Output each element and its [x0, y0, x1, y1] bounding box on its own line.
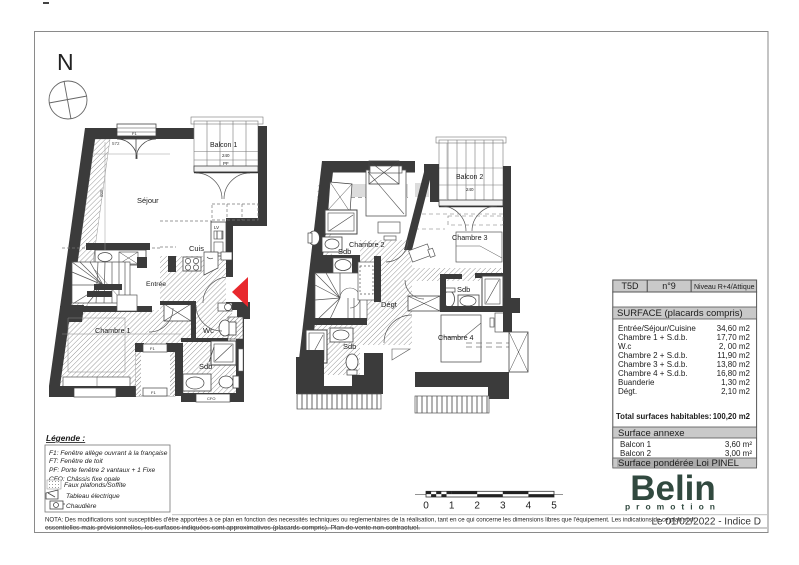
svg-text:NOTA: Des modifications sont s: NOTA: Des modifications sont susceptible… [45, 517, 695, 524]
svg-text:2,10 m2: 2,10 m2 [721, 387, 750, 396]
svg-text:5: 5 [551, 501, 557, 512]
svg-text:572: 572 [112, 141, 120, 146]
svg-text:LV: LV [214, 225, 219, 230]
svg-text:Dégt: Dégt [381, 300, 398, 309]
svg-text:0: 0 [423, 501, 429, 512]
svg-text:Dégt.: Dégt. [618, 387, 637, 396]
svg-text:Tableau électrique: Tableau électrique [66, 493, 120, 500]
svg-text:11,90 m2: 11,90 m2 [717, 351, 750, 360]
svg-text:Légende :: Légende : [46, 433, 85, 443]
svg-text:PF: PF [223, 161, 229, 166]
svg-text:3,00 m²: 3,00 m² [725, 449, 752, 458]
svg-text:Séjour: Séjour [137, 196, 159, 205]
svg-text:34,60 m2: 34,60 m2 [717, 324, 751, 333]
svg-text:Balcon 2: Balcon 2 [620, 449, 652, 458]
svg-text:Balcon 1: Balcon 1 [620, 440, 652, 449]
svg-text:FT: Fenêtre de toit: FT: Fenêtre de toit [49, 458, 104, 465]
svg-text:n°9: n°9 [662, 281, 676, 291]
svg-text:Chambre 3 + S.d.b.: Chambre 3 + S.d.b. [618, 360, 688, 369]
svg-text:Niveau R+4/Attique: Niveau R+4/Attique [694, 284, 755, 291]
svg-text:Sdb: Sdb [338, 247, 351, 256]
svg-text:SURFACE (placards compris): SURFACE (placards compris) [617, 308, 743, 319]
svg-text:Sdb: Sdb [457, 285, 470, 294]
svg-text:13,80 m2: 13,80 m2 [717, 360, 751, 369]
svg-text:Entrée: Entrée [146, 281, 166, 288]
svg-text:Chambre 4 + S.d.b.: Chambre 4 + S.d.b. [618, 369, 688, 378]
svg-text:240: 240 [222, 153, 230, 158]
svg-text:Le 01/02/2022 - Indice D: Le 01/02/2022 - Indice D [651, 517, 761, 528]
svg-text:Surface annexe: Surface annexe [618, 428, 685, 439]
svg-text:T5D: T5D [621, 281, 639, 291]
svg-text:Chambre 3: Chambre 3 [452, 233, 488, 242]
svg-text:2, 00 m2: 2, 00 m2 [719, 342, 751, 351]
svg-text:3: 3 [500, 501, 506, 512]
svg-text:17,70 m2: 17,70 m2 [717, 333, 751, 342]
svg-text:W.c: W.c [618, 342, 631, 351]
svg-text:4: 4 [526, 501, 532, 512]
svg-text:16,80 m2: 16,80 m2 [717, 369, 751, 378]
svg-text:Cuis: Cuis [189, 244, 204, 253]
svg-text:F1: F1 [150, 346, 155, 351]
svg-text:F1: Fenêtre allège ouvrant à l: F1: Fenêtre allège ouvrant à la français… [49, 450, 168, 457]
svg-text:N: N [57, 49, 74, 75]
svg-text:1: 1 [449, 501, 455, 512]
svg-text:PF: Porte fenêtre 2 vantaux +: PF: Porte fenêtre 2 vantaux + 1 Fixe [49, 467, 155, 474]
svg-text:Surface pondérée Loi PINEL: Surface pondérée Loi PINEL [618, 458, 739, 469]
svg-text:F1: F1 [132, 131, 137, 136]
svg-text:2: 2 [474, 501, 480, 512]
svg-text:Chaudière: Chaudière [66, 503, 97, 510]
svg-text:CFO: CFO [207, 396, 215, 401]
svg-text:Buanderie: Buanderie [618, 378, 655, 387]
svg-text:Balcon 2: Balcon 2 [456, 174, 483, 181]
svg-text:Chambre 2: Chambre 2 [349, 240, 385, 249]
svg-text:promotion: promotion [625, 502, 721, 512]
svg-text:Sdb: Sdb [199, 362, 212, 371]
svg-text:F1: F1 [151, 390, 156, 395]
svg-text:Entrée/Séjour/Cuisine: Entrée/Séjour/Cuisine [618, 324, 696, 333]
svg-text:1,30 m2: 1,30 m2 [721, 378, 750, 387]
svg-text:Balcon 1: Balcon 1 [210, 142, 237, 149]
svg-text:Total surfaces habitables:: Total surfaces habitables: [616, 412, 712, 421]
svg-text:Chambre 2 + S.d.b.: Chambre 2 + S.d.b. [618, 351, 688, 360]
svg-text:Sdb: Sdb [343, 342, 356, 351]
svg-text:Chambre 4: Chambre 4 [438, 333, 474, 342]
svg-text:3,60 m²: 3,60 m² [725, 440, 752, 449]
svg-text:240: 240 [466, 187, 474, 192]
svg-text:608: 608 [99, 189, 104, 197]
svg-text:100,20 m2: 100,20 m2 [713, 412, 751, 421]
svg-text:Chambre 1 + S.d.b.: Chambre 1 + S.d.b. [618, 333, 688, 342]
svg-text:Faux plafonds/Soffite: Faux plafonds/Soffite [64, 482, 126, 489]
